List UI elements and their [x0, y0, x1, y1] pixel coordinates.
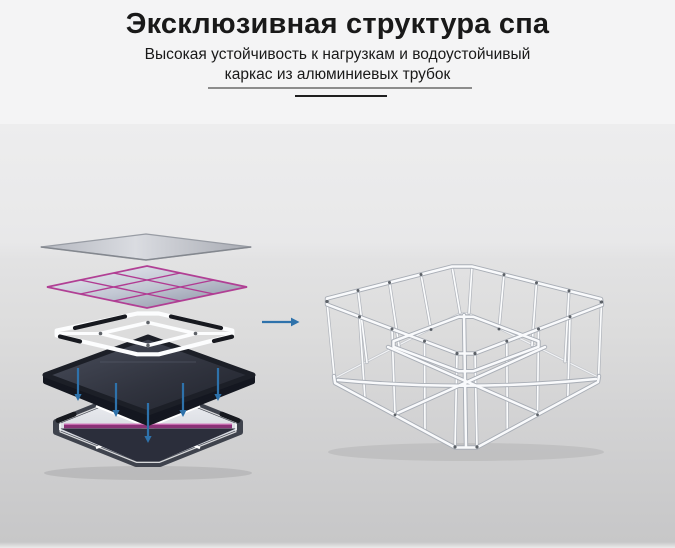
spa-structure-illustration	[0, 0, 675, 548]
right-arrow-icon	[262, 318, 300, 327]
assembled-frame	[325, 267, 604, 462]
exploded-stack	[41, 234, 253, 480]
stack-shadow	[44, 466, 252, 480]
layer-grid-cover	[47, 266, 247, 308]
layer-top-cover	[41, 234, 251, 260]
product-infographic: Эксклюзивная структура спа Высокая устой…	[0, 0, 675, 548]
product-photo	[0, 124, 675, 548]
